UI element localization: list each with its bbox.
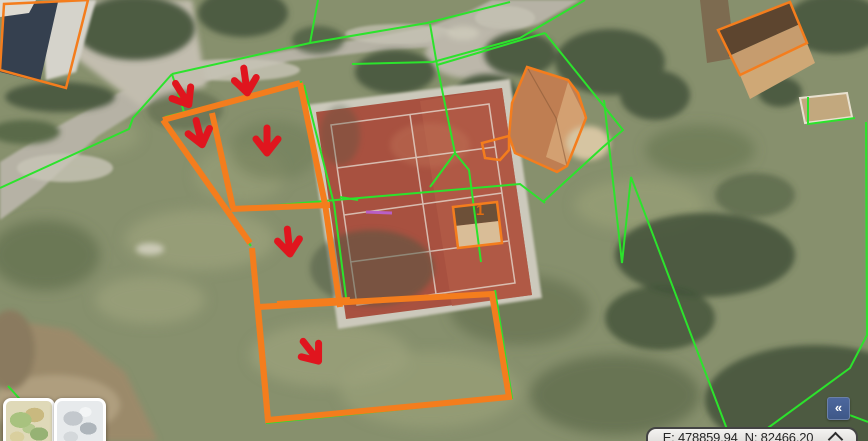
cadastral-boundary-line: [430, 33, 545, 187]
collapse-panel-button[interactable]: «: [827, 397, 850, 420]
coordinate-status-bar: E: 478859.94 N: 82466.20: [646, 427, 858, 441]
selected-parcel-boundary: [277, 300, 350, 304]
cadastral-boundary-line: [430, 24, 437, 65]
pointer-arrow-marker: [233, 67, 258, 95]
northing-coordinate: N: 82466.20: [745, 430, 814, 441]
double-chevron-left-icon: «: [835, 400, 842, 415]
cadastral-overlay: 1: [0, 0, 868, 441]
map-canvas[interactable]: 1 « E: 478859.94 N: 82466.20: [0, 0, 868, 441]
house-number-label: 1: [476, 202, 484, 219]
cadastral-boundary-line: [543, 33, 623, 202]
arrow-icon: [256, 128, 278, 153]
cadastral-boundary-line: [750, 122, 867, 441]
selected-parcel-boundary: [252, 248, 268, 420]
selected-parcel-outline: [258, 294, 509, 420]
chevron-up-icon[interactable]: [828, 432, 844, 441]
arrow-icon: [166, 78, 198, 111]
layer-thumbnail-topographic-map[interactable]: [3, 398, 55, 441]
pointer-arrow-marker: [294, 335, 327, 368]
pointer-arrow-marker: [166, 78, 198, 111]
cadastral-boundary-line: [0, 74, 172, 188]
cadastral-boundary-line: [604, 100, 733, 441]
selected-parcel-boundary: [231, 205, 330, 209]
cadastral-boundary-line: [808, 97, 855, 124]
selected-parcel-boundary: [300, 83, 340, 307]
pointer-arrow-marker: [185, 118, 212, 148]
pointer-arrow-marker: [276, 228, 300, 255]
arrow-icon: [185, 118, 212, 148]
annotation-line: [366, 212, 392, 213]
building-outline: [482, 136, 509, 160]
arrow-icon: [294, 335, 327, 368]
cadastral-boundary-line: [352, 0, 585, 64]
easting-coordinate: E: 478859.94: [663, 430, 738, 441]
cadastral-boundary-line: [172, 2, 510, 74]
arrow-icon: [276, 228, 300, 255]
cadastral-boundary-line: [310, 0, 318, 43]
building-outline: [509, 67, 586, 172]
building-outline: [0, 0, 88, 88]
layer-thumbnail-orthophoto[interactable]: [54, 398, 106, 441]
pointer-arrow-marker: [256, 128, 278, 153]
arrow-icon: [233, 67, 258, 95]
building-outline: [718, 2, 807, 75]
